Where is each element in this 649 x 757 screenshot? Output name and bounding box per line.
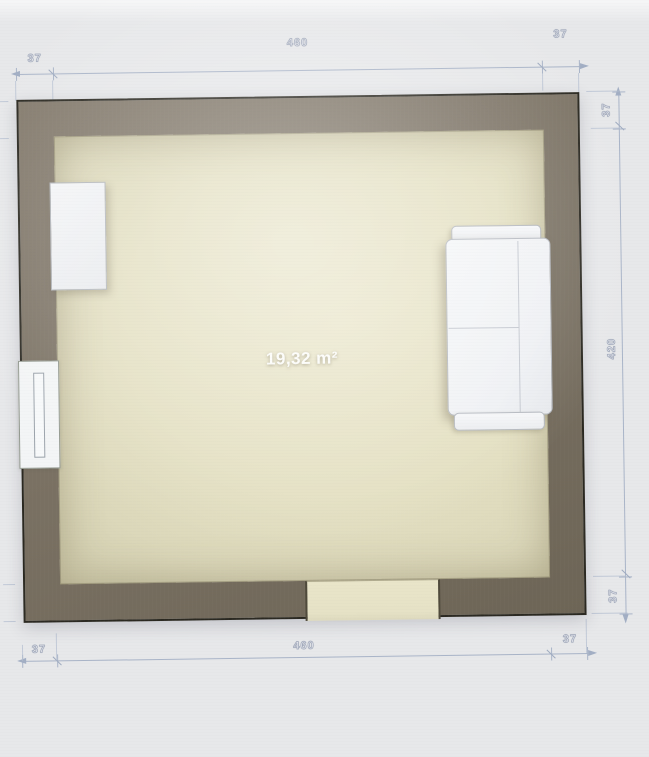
dim-right-top: 37 [586, 89, 627, 130]
dimension-bottom: 37 460 37 [0, 0, 644, 4]
dimension-line [16, 66, 580, 75]
dimension-line [22, 653, 588, 662]
dimension-right: 37 420 37 [0, 0, 644, 4]
dimension-arrow [580, 63, 593, 69]
dim-top-left: 37 [16, 52, 54, 65]
dim-right-bottom: 37 [593, 575, 634, 616]
floorplan-canvas: 37 460 37 37 420 37 [0, 0, 649, 757]
dimension-arrow [7, 71, 20, 77]
floorplan-sheet: 37 460 37 37 420 37 [0, 0, 649, 757]
dim-right-span: 420 [592, 328, 633, 369]
room-area-label: 19,32 m² [266, 349, 338, 370]
dim-top-span: 460 [247, 36, 347, 49]
sideboard[interactable] [49, 182, 107, 291]
dimension-arrow [623, 614, 629, 627]
dim-bottom-left: 37 [20, 643, 58, 656]
dim-bottom-span: 460 [254, 639, 354, 652]
sofa-armrest-bottom [454, 412, 545, 431]
door-opening[interactable] [305, 579, 441, 621]
dim-bottom-right: 37 [550, 633, 590, 646]
dimension-left-ticks [0, 0, 644, 4]
dimension-arrow [588, 650, 601, 656]
window[interactable] [18, 360, 61, 469]
dim-top-right: 37 [541, 28, 579, 41]
window-glazing [33, 373, 45, 458]
dimension-top: 37 460 37 [0, 0, 644, 4]
sofa[interactable] [445, 223, 554, 430]
dimension-arrow [13, 658, 26, 664]
